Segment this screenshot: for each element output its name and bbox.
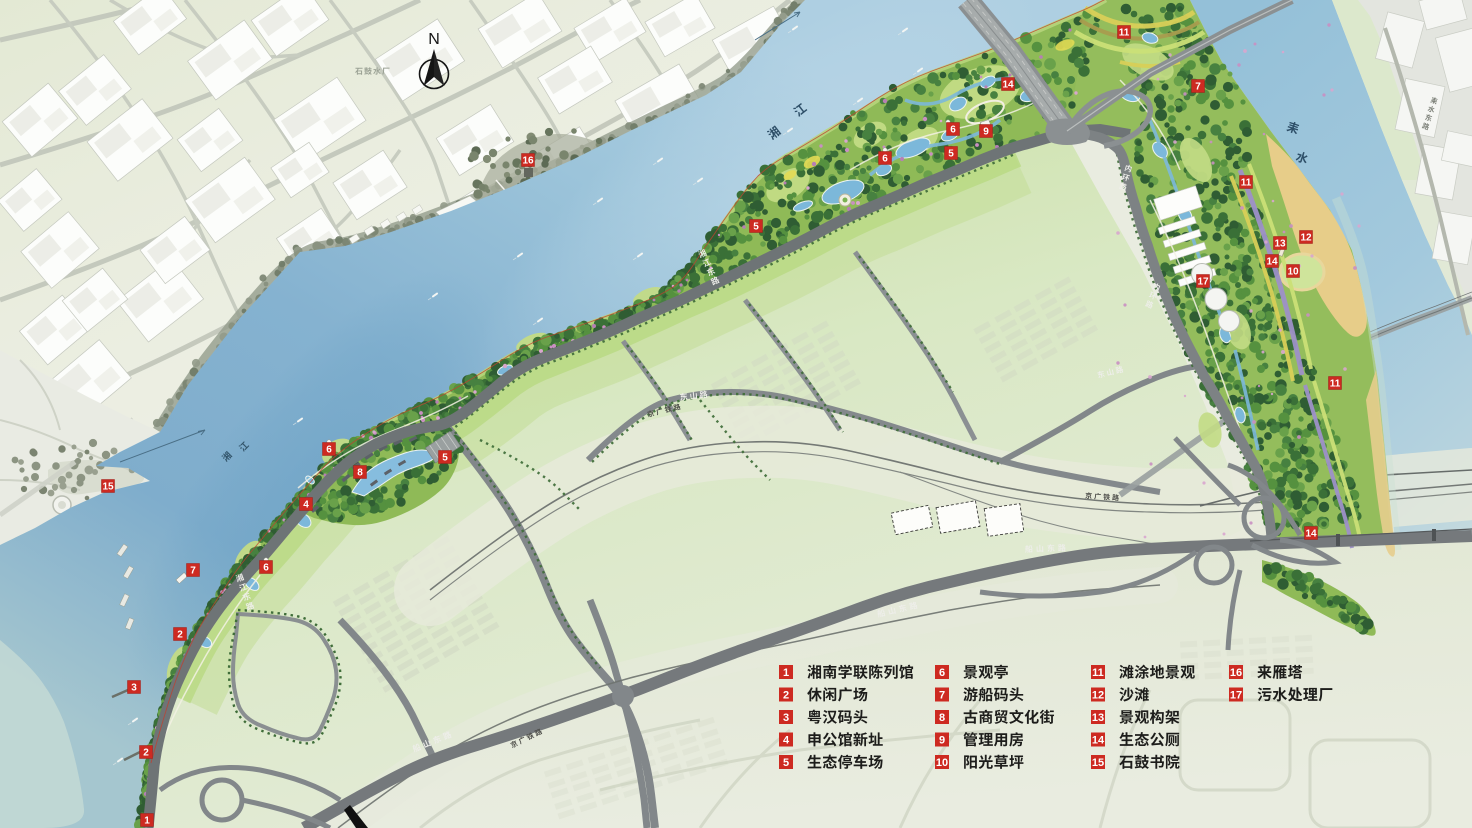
svg-text:1: 1 [783,667,789,679]
svg-text:8: 8 [939,712,945,724]
svg-text:11: 11 [1330,379,1341,390]
svg-text:5: 5 [753,222,759,233]
svg-text:2: 2 [177,630,183,641]
svg-text:5: 5 [948,149,954,160]
svg-text:5: 5 [442,453,448,464]
svg-text:6: 6 [882,154,888,165]
svg-text:12: 12 [1092,690,1104,702]
svg-text:4: 4 [303,500,309,511]
svg-text:14: 14 [1305,529,1317,540]
svg-text:14: 14 [1002,80,1014,91]
svg-text:9: 9 [983,127,989,138]
svg-text:7: 7 [939,690,945,702]
svg-text:17: 17 [1197,277,1209,288]
svg-text:4: 4 [783,735,790,747]
svg-text:13: 13 [1092,712,1104,724]
svg-text:15: 15 [1092,757,1104,769]
svg-text:10: 10 [1287,267,1299,278]
svg-text:5: 5 [783,757,789,769]
svg-text:10: 10 [936,757,948,769]
svg-text:17: 17 [1230,690,1242,702]
svg-text:2: 2 [143,748,149,759]
svg-text:16: 16 [1230,667,1242,679]
svg-text:7: 7 [1195,82,1201,93]
svg-text:6: 6 [326,445,332,456]
svg-text:14: 14 [1266,257,1278,268]
svg-text:N: N [428,31,440,48]
svg-text:14: 14 [1092,735,1105,747]
svg-text:6: 6 [263,563,269,574]
svg-text:13: 13 [1274,239,1286,250]
svg-text:15: 15 [102,482,114,493]
svg-text:12: 12 [1300,233,1312,244]
svg-text:11: 11 [1119,28,1130,39]
svg-text:11: 11 [1241,178,1252,189]
svg-text:8: 8 [357,468,363,479]
svg-text:11: 11 [1092,667,1104,679]
svg-text:3: 3 [131,683,137,694]
svg-text:6: 6 [939,667,945,679]
svg-text:1: 1 [144,816,150,827]
svg-text:9: 9 [939,735,945,747]
svg-text:16: 16 [522,156,534,167]
svg-text:3: 3 [783,712,789,724]
svg-text:6: 6 [950,125,956,136]
svg-text:2: 2 [783,690,789,702]
svg-text:7: 7 [190,566,196,577]
